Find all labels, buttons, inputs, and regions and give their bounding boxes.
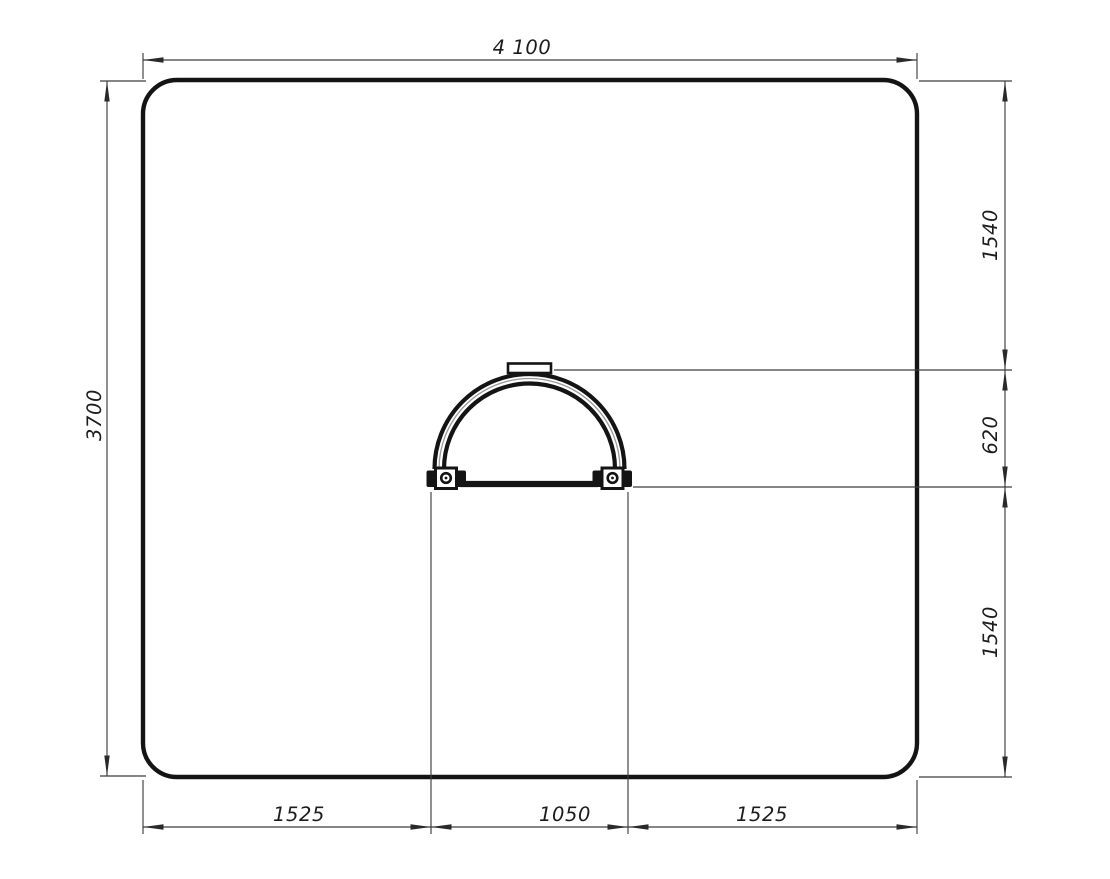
dimension-label-bottom-left: 1525	[273, 803, 325, 826]
drawing-page: 4 100 3700 1540 620 1540	[0, 0, 1110, 879]
right-clamp-bracket	[593, 468, 633, 489]
dimension-left-height: 3700	[83, 81, 146, 776]
left-clamp-bolt-center	[445, 477, 448, 480]
top-mounting-tab	[508, 364, 551, 374]
dimension-label-bottom-center: 1050	[539, 803, 591, 826]
left-clamp-bracket	[427, 468, 467, 489]
dimension-label-left-height: 3700	[83, 389, 106, 441]
technical-drawing: 4 100 3700 1540 620 1540	[0, 0, 1110, 879]
dimension-label-right-lower: 1540	[979, 606, 1002, 658]
dimension-top-width: 4 100	[143, 36, 917, 79]
right-clamp-bolt-center	[611, 477, 614, 480]
dimension-label-right-middle: 620	[979, 415, 1002, 454]
dimension-label-right-upper: 1540	[979, 209, 1002, 261]
dimension-label-top-width: 4 100	[493, 36, 552, 59]
mat-outline	[143, 80, 917, 777]
dimension-label-bottom-right: 1525	[736, 803, 788, 826]
